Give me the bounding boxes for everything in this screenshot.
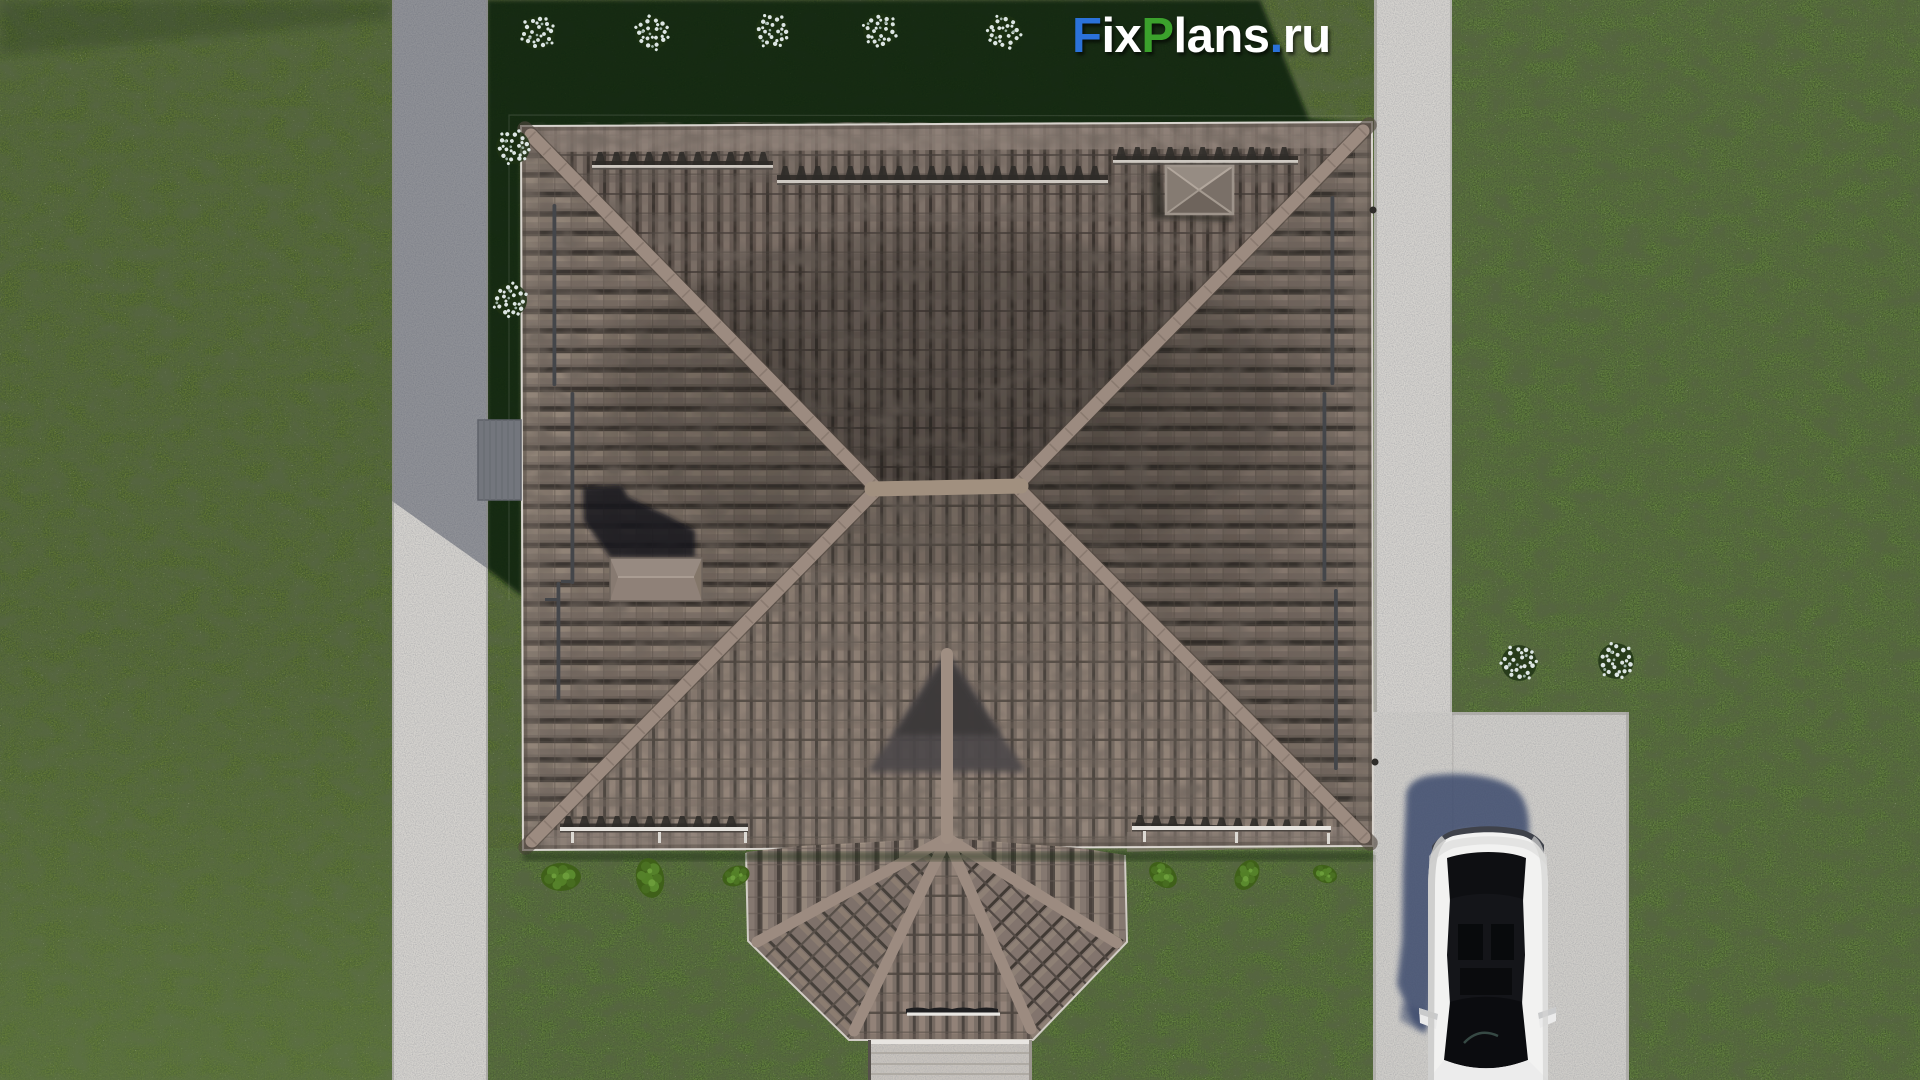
svg-text:FixPlans.ru: FixPlans.ru <box>1072 9 1331 63</box>
